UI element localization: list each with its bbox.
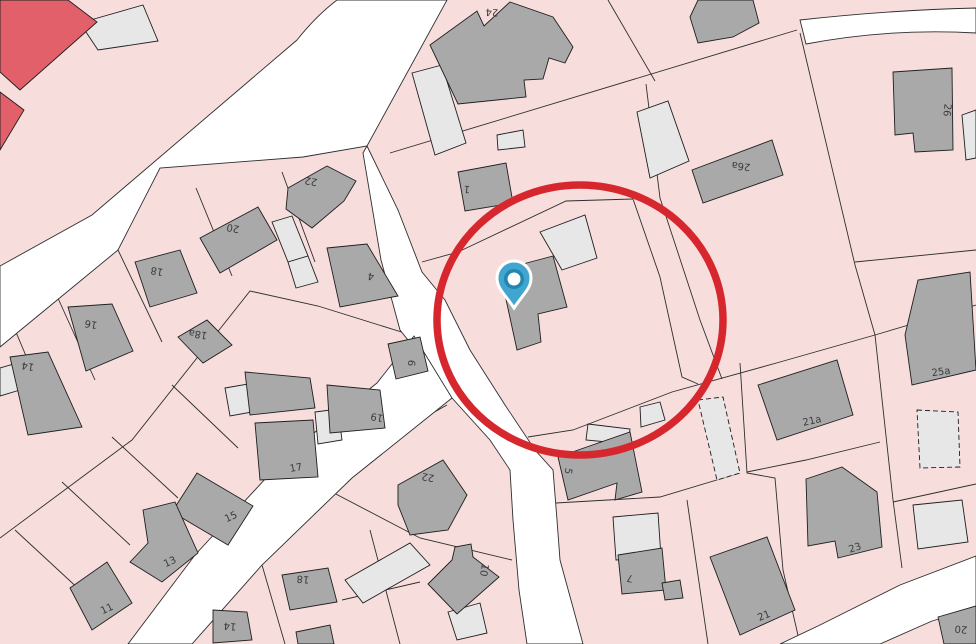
- house-number-label: 18: [150, 264, 164, 277]
- house-number-label: 22: [421, 470, 435, 483]
- map-viewport[interactable]: 24126a26222018418a1614619171513111418221…: [0, 0, 976, 644]
- building-polygon: [917, 410, 960, 468]
- house-number-label: 10: [477, 563, 490, 577]
- house-number-label: 14: [21, 359, 35, 372]
- house-number-label: 20: [226, 221, 240, 234]
- house-number-label: 26a: [731, 159, 751, 172]
- map-canvas[interactable]: 24126a26222018418a1614619171513111418221…: [0, 0, 976, 644]
- house-number-label: 20: [954, 622, 968, 634]
- house-number-label: 1: [463, 183, 470, 195]
- building-polygon: [618, 548, 666, 594]
- building-polygon: [245, 372, 315, 415]
- building-polygon: [327, 385, 385, 433]
- pin-center-dot: [508, 273, 521, 286]
- building-polygon: [662, 580, 683, 600]
- house-number-label: 22: [304, 174, 318, 187]
- house-number-label: 19: [370, 410, 384, 423]
- house-number-label: 16: [84, 317, 98, 330]
- house-number-label: 6: [405, 359, 417, 366]
- building-polygon: [913, 500, 968, 549]
- house-number-label: 14: [223, 619, 237, 631]
- building-polygon: [255, 420, 318, 480]
- house-number-label: 17: [289, 462, 303, 475]
- house-number-label: 24: [485, 6, 498, 18]
- house-number-label: 18: [296, 572, 310, 584]
- house-number-label: 26: [940, 103, 952, 117]
